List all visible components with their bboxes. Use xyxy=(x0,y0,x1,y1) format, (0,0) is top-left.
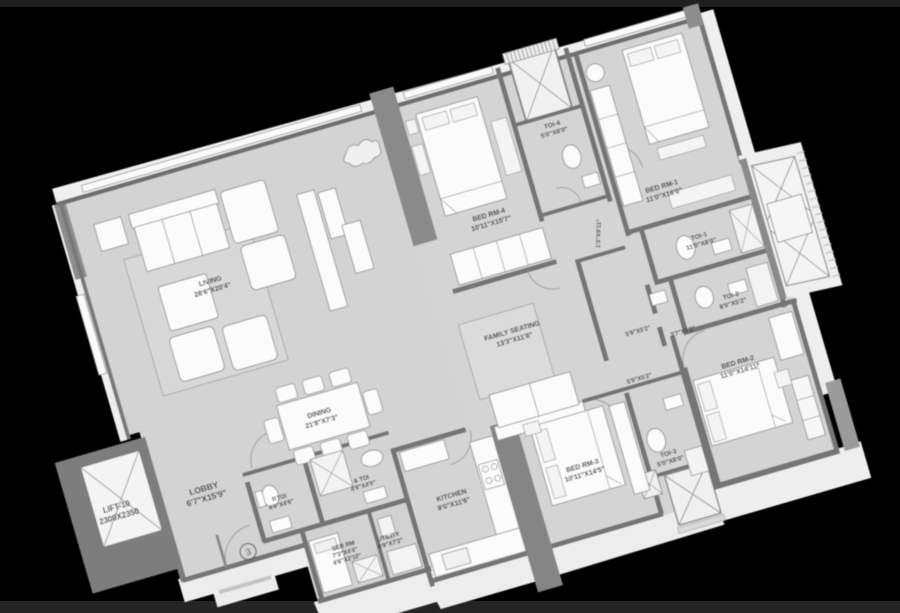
svg-text:1'3"X9'11": 1'3"X9'11" xyxy=(596,219,603,248)
